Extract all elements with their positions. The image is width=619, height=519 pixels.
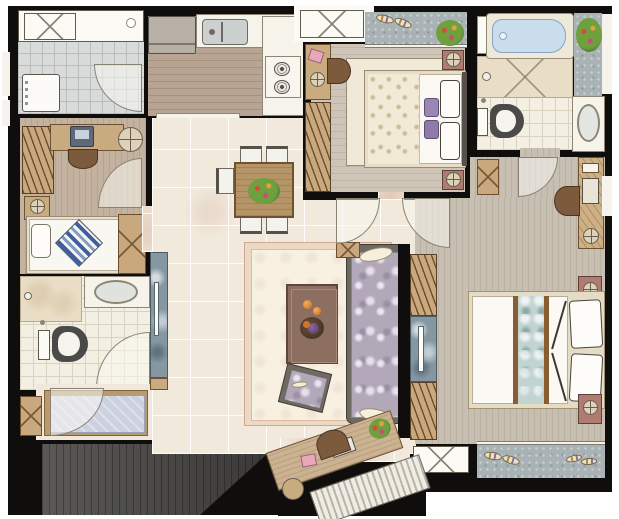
shower-head-icon-master <box>482 72 491 81</box>
wall-living-master <box>398 244 410 444</box>
ottoman-cushion <box>285 370 327 408</box>
master-toilet-seat <box>496 110 516 132</box>
bedroom2-desk-chair <box>327 58 351 84</box>
bedroom2-wardrobe <box>305 102 331 192</box>
fruit-orange-2 <box>313 307 321 315</box>
shower-head-icon-b2 <box>24 292 32 300</box>
window-strip-right-mid <box>602 176 612 216</box>
planter-flowers <box>576 18 602 52</box>
sink-divider <box>221 22 223 42</box>
utility-drain-icon <box>126 18 136 28</box>
dining-chair-5 <box>216 168 234 194</box>
ac-outdoor-unit-utility <box>24 13 76 40</box>
bedroom2-lamp-bottom <box>446 172 461 187</box>
monitor-screen <box>75 130 89 139</box>
master-bath-door-leaf <box>477 16 487 54</box>
bathroom2-toilet-tank <box>38 330 50 360</box>
bedroom2-lamp-top <box>446 52 461 67</box>
bathroom2-drain <box>40 320 45 325</box>
bathroom2-toilet-bowl <box>52 326 88 362</box>
bedroom2-headboard <box>462 72 467 166</box>
master-column <box>477 159 499 195</box>
refrigerator <box>148 16 196 54</box>
bedroom2-purple-cushion-2 <box>424 120 439 139</box>
master-tv <box>418 326 424 372</box>
fridge-divider <box>149 43 195 45</box>
bedroom3-side-table <box>118 127 143 152</box>
bedside-lamp-b3 <box>30 199 45 214</box>
bedroom2-desk-lamp <box>310 72 325 87</box>
master-toilet-bowl <box>490 104 524 138</box>
dining-chair-4 <box>266 216 288 234</box>
bathroom2-basin <box>94 280 138 304</box>
master-pillow-1 <box>569 299 603 349</box>
bedroom2-pillow-1 <box>440 80 460 118</box>
window-strip-right-top <box>602 14 612 94</box>
tv-wall-base-cabinet <box>150 378 168 390</box>
master-bath-basin <box>577 104 600 142</box>
master-toilet-tank <box>477 108 488 136</box>
bedroom2-balcony-plant <box>436 20 464 46</box>
sofa-cushions <box>351 252 401 418</box>
washer-controls <box>25 79 28 105</box>
bedroom2-purple-cushion-1 <box>424 98 439 117</box>
master-bath-drain <box>481 98 486 103</box>
entry-column <box>20 396 42 436</box>
bedroom3-desk-chair <box>68 149 98 169</box>
bedroom2-door-gap <box>378 192 404 200</box>
vanity-tray <box>582 163 599 173</box>
hallway-low-cabinet <box>336 242 360 258</box>
dining-chair-3 <box>240 216 262 234</box>
burner-2 <box>274 80 290 94</box>
fruit-apple <box>303 321 310 328</box>
window-stub-left-2 <box>2 100 10 126</box>
bathtub-drain <box>499 32 507 40</box>
entry-stool <box>282 478 304 500</box>
window-stub-left-1 <box>2 52 10 96</box>
sofa <box>346 244 404 424</box>
vanity-mirror <box>582 178 599 204</box>
console-plant <box>366 416 393 442</box>
console-book <box>300 453 317 468</box>
cooktop <box>265 56 301 98</box>
master-wardrobe-upper <box>410 254 437 316</box>
bedroom2-floral-duvet <box>368 74 420 164</box>
burner-1 <box>274 62 290 76</box>
floor-plan <box>0 0 619 519</box>
vanity-lamp <box>583 228 599 244</box>
master-wardrobe-lower <box>410 382 437 440</box>
washing-machine <box>22 74 60 112</box>
kitchen-sink <box>202 19 248 45</box>
desk-monitor <box>70 126 94 147</box>
fruit-orange-1 <box>303 300 312 309</box>
master-lamp-bottom <box>583 400 598 415</box>
sink-faucet <box>209 29 215 35</box>
bedroom3-pillow <box>31 224 51 258</box>
tv-feature-wall <box>150 252 168 378</box>
master-bed-runner <box>513 296 549 404</box>
bathtub <box>492 19 566 53</box>
dining-flower-centerpiece <box>248 178 280 204</box>
fruit-tray <box>300 317 324 339</box>
bedroom2-pillow-2 <box>440 122 460 160</box>
wall-mounted-tv <box>154 282 159 336</box>
ac-outdoor-unit-bedroom2 <box>300 10 364 38</box>
vanity-stool <box>554 186 580 216</box>
master-bath-shower <box>477 56 573 98</box>
toilet-seat-b2 <box>58 332 80 356</box>
